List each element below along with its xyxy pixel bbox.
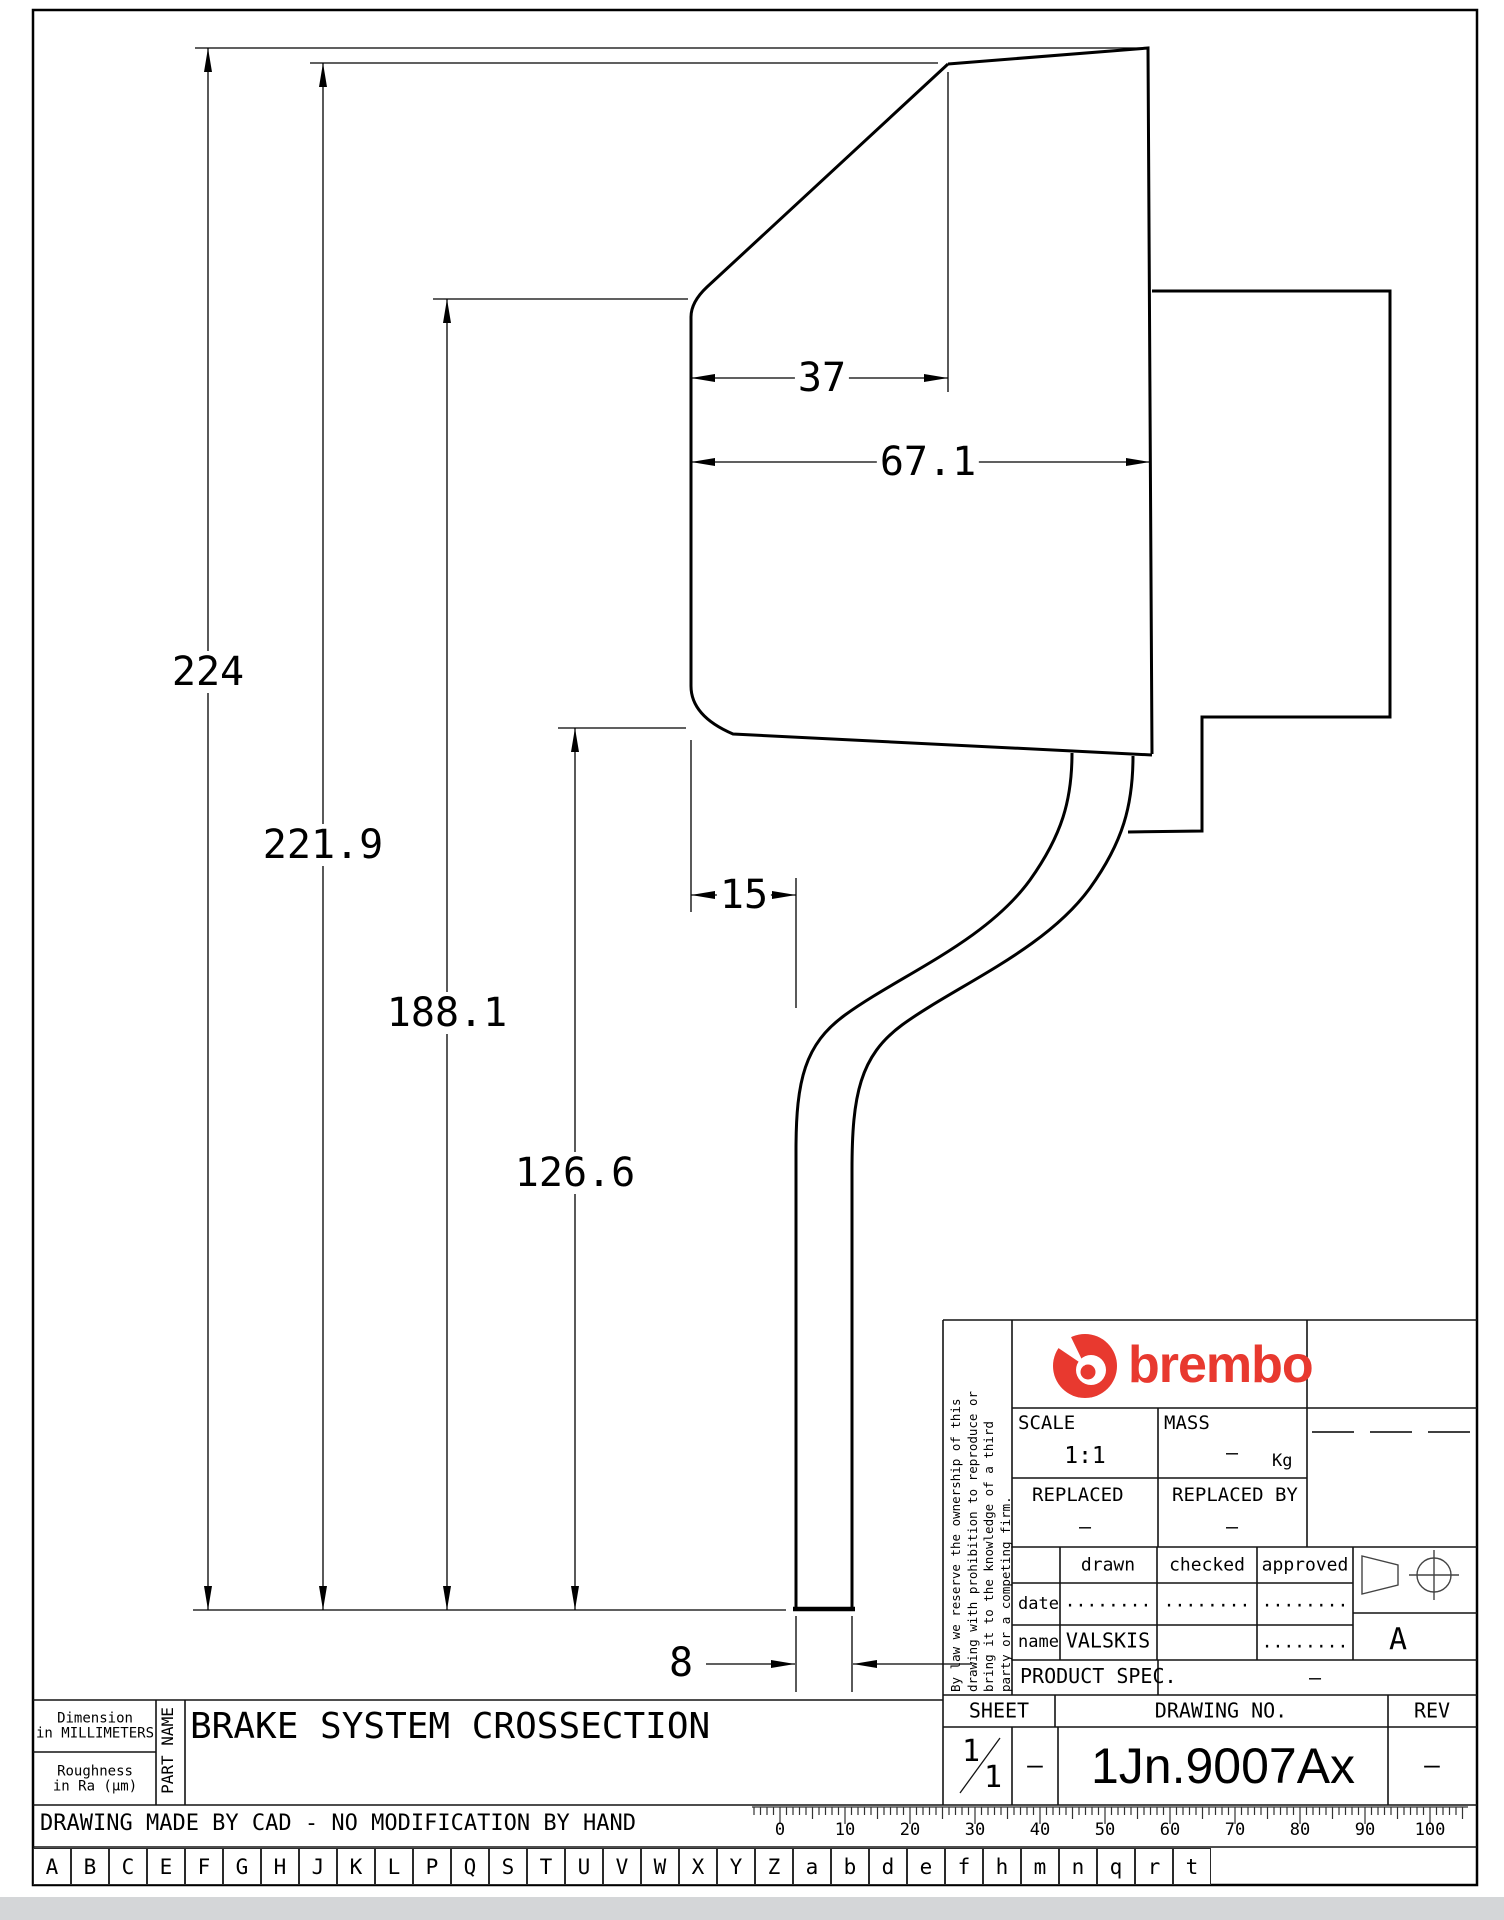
letter-cell-e: e bbox=[907, 1848, 945, 1885]
drawing-no-label: DRAWING NO. bbox=[1155, 1701, 1287, 1722]
letter-cell-F: F bbox=[185, 1848, 223, 1885]
sheet-label: SHEET bbox=[969, 1701, 1029, 1722]
date-approved: ........ bbox=[1262, 1593, 1349, 1612]
col-approved: approved bbox=[1262, 1557, 1349, 1576]
dim-label-224: 224 bbox=[169, 651, 247, 693]
dimension-note: Dimensionin MILLIMETERS bbox=[36, 1711, 154, 1740]
bottom-gray-bar bbox=[0, 1897, 1504, 1920]
letter-cell-Y: Y bbox=[717, 1848, 755, 1885]
letter-cell-W: W bbox=[641, 1848, 679, 1885]
letter-cell-t: t bbox=[1173, 1848, 1211, 1885]
replaced-by-value: – bbox=[1226, 1517, 1238, 1538]
ruler-label-80: 80 bbox=[1270, 1820, 1330, 1840]
letter-cell-n: n bbox=[1059, 1848, 1097, 1885]
disclaimer-text: By law we reserve the ownership of this … bbox=[948, 1324, 1014, 1692]
letter-cell-a: a bbox=[793, 1848, 831, 1885]
dim-label-126-6: 126.6 bbox=[512, 1152, 638, 1194]
letter-cell-m: m bbox=[1021, 1848, 1059, 1885]
sheet-numerator: 1 bbox=[962, 1736, 980, 1768]
rev-value: – bbox=[1424, 1752, 1440, 1779]
letter-cell-X: X bbox=[679, 1848, 717, 1885]
cad-drawing-page: { "drawing": { "title": "BRAKE SYSTEM CR… bbox=[0, 0, 1504, 1920]
letter-cell-P: P bbox=[413, 1848, 451, 1885]
letter-cell-J: J bbox=[299, 1848, 337, 1885]
ruler-label-60: 60 bbox=[1140, 1820, 1200, 1840]
dim-label-37: 37 bbox=[795, 357, 849, 399]
ruler-label-100: 100 bbox=[1400, 1820, 1460, 1840]
rev-label: REV bbox=[1414, 1701, 1450, 1722]
product-spec-label: PRODUCT SPEC. bbox=[1020, 1666, 1177, 1687]
ruler-label-50: 50 bbox=[1075, 1820, 1135, 1840]
sheet-dash: – bbox=[1027, 1752, 1043, 1779]
letter-cell-C: C bbox=[109, 1848, 147, 1885]
ruler-label-30: 30 bbox=[945, 1820, 1005, 1840]
cad-note: DRAWING MADE BY CAD - NO MODIFICATION BY… bbox=[40, 1812, 636, 1835]
letter-cell-Z: Z bbox=[755, 1848, 793, 1885]
replaced-value: – bbox=[1079, 1517, 1091, 1538]
letter-cell-f: f bbox=[945, 1848, 983, 1885]
dim-label-221-9: 221.9 bbox=[260, 824, 386, 866]
brembo-wordmark: brembo bbox=[1128, 1338, 1313, 1393]
mass-unit: Kg bbox=[1272, 1453, 1292, 1471]
dim-label-188-1: 188.1 bbox=[384, 992, 510, 1034]
drawing-number: 1Jn.9007Ax bbox=[1091, 1740, 1355, 1793]
letter-cell-H: H bbox=[261, 1848, 299, 1885]
mass-value: – bbox=[1226, 1443, 1238, 1464]
ruler-label-90: 90 bbox=[1335, 1820, 1395, 1840]
letter-cell-K: K bbox=[337, 1848, 375, 1885]
letter-cell-d: d bbox=[869, 1848, 907, 1885]
row-name-label: name bbox=[1018, 1634, 1059, 1652]
product-spec-value: – bbox=[1309, 1668, 1321, 1689]
letter-cell-E: E bbox=[147, 1848, 185, 1885]
part-name-label: PART NAME bbox=[160, 1700, 177, 1801]
name-approved: ........ bbox=[1262, 1634, 1349, 1653]
letter-cell-b: b bbox=[831, 1848, 869, 1885]
projection-letter: A bbox=[1389, 1624, 1407, 1656]
replaced-by-label: REPLACED BY bbox=[1172, 1486, 1298, 1506]
dim-label-15: 15 bbox=[717, 874, 771, 916]
sheet-denominator: 1 bbox=[984, 1762, 1002, 1794]
dim-label-67-1: 67.1 bbox=[877, 441, 979, 483]
scale-label: SCALE bbox=[1018, 1414, 1075, 1434]
ruler-label-40: 40 bbox=[1010, 1820, 1070, 1840]
letter-cell-V: V bbox=[603, 1848, 641, 1885]
letter-cell-S: S bbox=[489, 1848, 527, 1885]
dim-label-8: 8 bbox=[666, 1642, 696, 1684]
ruler-label-10: 10 bbox=[815, 1820, 875, 1840]
letter-cell-B: B bbox=[71, 1848, 109, 1885]
letter-cell-q: q bbox=[1097, 1848, 1135, 1885]
mass-label: MASS bbox=[1164, 1414, 1210, 1434]
date-drawn: ........ bbox=[1065, 1593, 1152, 1612]
ruler-label-70: 70 bbox=[1205, 1820, 1265, 1840]
ruler-label-0: 0 bbox=[750, 1820, 810, 1840]
brembo-logo-icon bbox=[1051, 1334, 1117, 1398]
letter-cell-G: G bbox=[223, 1848, 261, 1885]
page-title: BRAKE SYSTEM CROSSECTION bbox=[190, 1708, 710, 1746]
letter-cell-U: U bbox=[565, 1848, 603, 1885]
ruler-label-20: 20 bbox=[880, 1820, 940, 1840]
scale-value: 1:1 bbox=[1064, 1444, 1106, 1468]
letter-cell-A: A bbox=[33, 1848, 71, 1885]
letter-cell-Q: Q bbox=[451, 1848, 489, 1885]
col-drawn: drawn bbox=[1081, 1557, 1135, 1576]
name-drawn: VALSKIS bbox=[1066, 1631, 1150, 1652]
letter-cell-T: T bbox=[527, 1848, 565, 1885]
row-date-label: date bbox=[1018, 1596, 1059, 1614]
projection-symbol-icon bbox=[1362, 1550, 1459, 1600]
letter-cell-r: r bbox=[1135, 1848, 1173, 1885]
dimension-lines bbox=[193, 48, 1476, 1692]
roughness-note: Roughnessin Ra (μm) bbox=[53, 1764, 137, 1793]
date-checked: ........ bbox=[1164, 1593, 1251, 1612]
letter-cell-L: L bbox=[375, 1848, 413, 1885]
col-checked: checked bbox=[1169, 1557, 1245, 1576]
replaced-label: REPLACED bbox=[1032, 1486, 1124, 1506]
letter-cell-h: h bbox=[983, 1848, 1021, 1885]
